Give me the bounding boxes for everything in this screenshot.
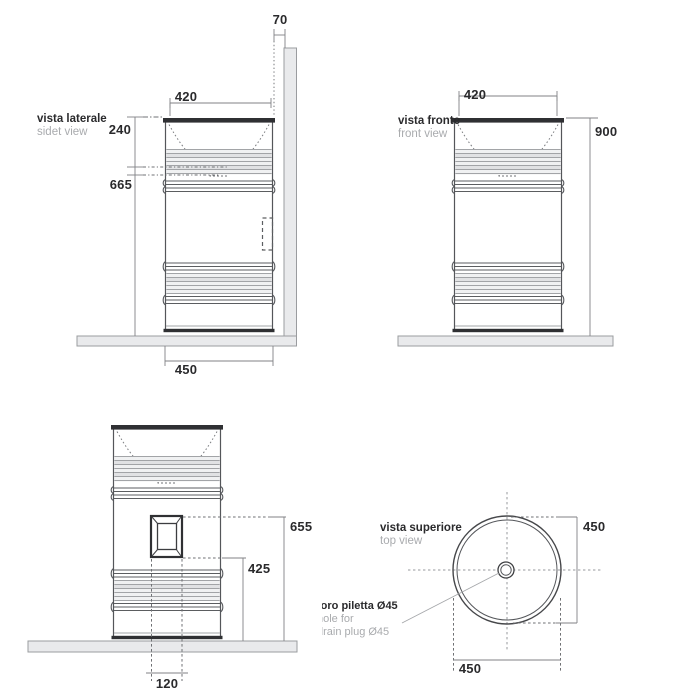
dim-label-450-top-right: 450 bbox=[583, 519, 605, 534]
front-view-title: vista fronte bbox=[398, 115, 460, 127]
floor-back bbox=[28, 641, 297, 652]
side-view-title: vista laterale bbox=[37, 113, 107, 125]
drain-note-line1: foro piletta Ø45 bbox=[322, 600, 414, 613]
dim-900 bbox=[566, 118, 598, 336]
dim-label-665: 665 bbox=[110, 177, 132, 192]
dim-label-450-side: 450 bbox=[175, 362, 197, 377]
dim-label-240: 240 bbox=[109, 122, 131, 137]
dim-label-420-front: 420 bbox=[464, 87, 486, 102]
dim-label-120: 120 bbox=[156, 676, 178, 691]
drawing-canvas bbox=[0, 0, 700, 700]
floor-side bbox=[77, 336, 297, 346]
floor-front bbox=[398, 336, 613, 346]
dim-label-655: 655 bbox=[290, 519, 312, 534]
wall bbox=[284, 48, 297, 336]
back-view bbox=[28, 425, 297, 681]
dim-70 bbox=[274, 29, 285, 117]
top-view-title: vista superiore bbox=[380, 522, 462, 534]
drain-note: foro piletta Ø45 hole for drain plug Ø45 bbox=[322, 600, 414, 639]
drain-note-line2: hole for bbox=[322, 613, 414, 626]
barrel-front bbox=[452, 118, 564, 332]
dim-label-900: 900 bbox=[595, 124, 617, 139]
side-view-subtitle: sidet view bbox=[37, 126, 88, 138]
dim-label-420-side: 420 bbox=[175, 89, 197, 104]
dim-label-70: 70 bbox=[273, 12, 288, 27]
drain-circle bbox=[498, 562, 514, 578]
top-view bbox=[402, 492, 603, 672]
dim-label-425: 425 bbox=[248, 561, 270, 576]
drain-leader-line bbox=[402, 573, 499, 623]
side-view bbox=[77, 29, 297, 366]
barrel-side bbox=[163, 118, 275, 332]
niche-opening bbox=[151, 516, 182, 557]
front-view-subtitle: front view bbox=[398, 128, 447, 140]
drain-note-line3: drain plug Ø45 bbox=[322, 626, 414, 639]
technical-drawing-page: vista laterale sidet view 70 420 240 665… bbox=[0, 0, 700, 700]
top-view-subtitle: top view bbox=[380, 535, 422, 547]
dim-label-450-top-bottom: 450 bbox=[459, 661, 481, 676]
